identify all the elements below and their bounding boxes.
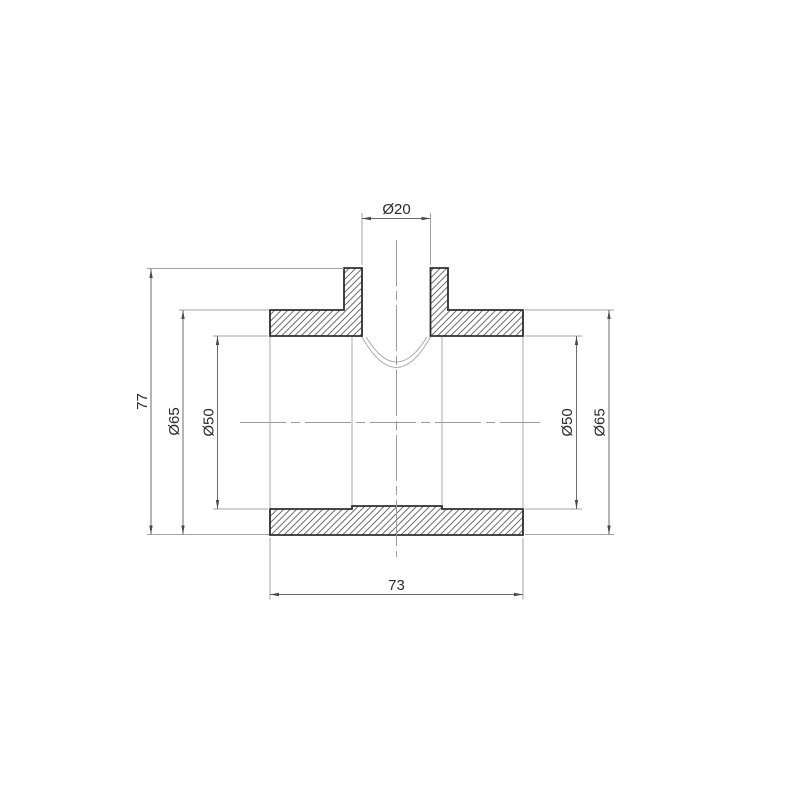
dimension-label-outer-diameter-left: Ø65	[166, 407, 183, 435]
arrow-right-icon	[514, 593, 523, 596]
arrow-down-icon	[149, 526, 152, 535]
dimension-label-bore-diameter-right: Ø50	[559, 408, 576, 436]
drawing-page: Ø20 77 Ø65 Ø50	[0, 0, 800, 800]
arrow-down-icon	[216, 500, 219, 509]
arrow-down-icon	[607, 526, 610, 535]
dimension-label-branch-bore: Ø20	[382, 201, 410, 218]
arrow-up-icon	[607, 310, 610, 319]
dimension-overall-height: 77	[134, 269, 344, 535]
arrow-down-icon	[181, 526, 184, 535]
arrow-right-icon	[422, 217, 431, 220]
dimension-label-overall-width: 73	[388, 577, 405, 594]
dimension-label-overall-height: 77	[134, 393, 151, 410]
section-top-left-wall	[270, 268, 362, 336]
arrow-up-icon	[149, 269, 152, 278]
arrow-left-icon	[362, 217, 371, 220]
arrow-up-icon	[575, 336, 578, 345]
dimension-overall-width: 73	[270, 538, 523, 600]
arrow-left-icon	[270, 593, 279, 596]
arrow-up-icon	[181, 310, 184, 319]
section-top-right-wall	[431, 268, 524, 336]
technical-drawing-canvas: Ø20 77 Ø65 Ø50	[0, 0, 800, 800]
dimension-label-outer-diameter-right: Ø65	[592, 408, 609, 436]
arrow-down-icon	[575, 500, 578, 509]
arrow-up-icon	[216, 336, 219, 345]
dimension-label-bore-diameter-left: Ø50	[201, 408, 218, 436]
